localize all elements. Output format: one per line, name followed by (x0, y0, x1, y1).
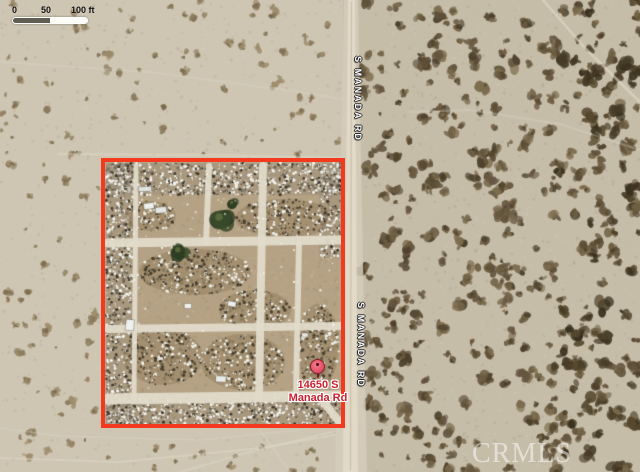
road-label-s-manada-rd-bottom: S MANADA RD (356, 302, 366, 388)
scale-tick-50: 50 (41, 5, 51, 15)
scale-tick-100ft: 100 ft (71, 5, 95, 15)
scale-bar-graphic (12, 17, 88, 24)
map-scale-bar: 0 50 100 ft (10, 5, 110, 27)
pin-hole (316, 363, 319, 366)
map-viewport[interactable]: S MANADA RD S MANADA RD 14650 S Manada R… (0, 0, 640, 472)
satellite-imagery (0, 0, 640, 472)
road-label-s-manada-rd-top: S MANADA RD (353, 56, 363, 142)
pin-head-icon (310, 359, 325, 374)
location-pin[interactable] (310, 359, 325, 379)
scale-tick-0: 0 (12, 5, 17, 15)
